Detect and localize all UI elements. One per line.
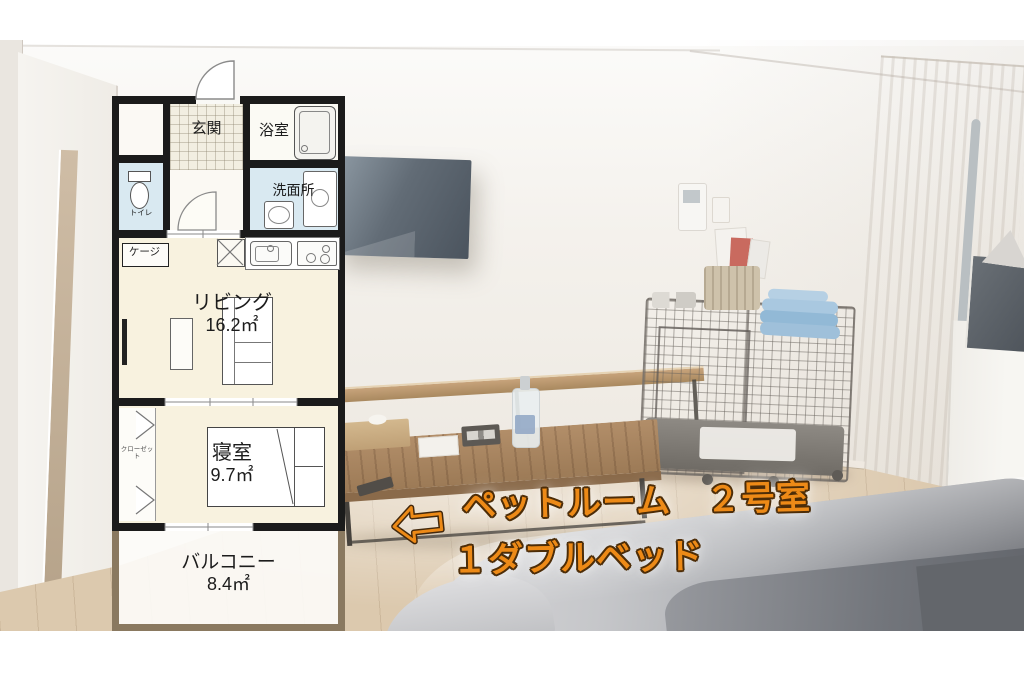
- light-switch: [712, 197, 730, 223]
- plan-area-bedroom: 9.7㎡: [132, 466, 332, 485]
- plan-label-closet: クローゼット: [119, 447, 155, 461]
- bottle-label: [515, 415, 535, 434]
- floorplan-overlay: 玄関 浴室 トイレ 洗面所 ケージ リビング 16.2㎡ 寝室 9.7㎡ クロー…: [112, 95, 345, 632]
- plan-linework-svg: [112, 55, 345, 632]
- left-arrow-icon: [389, 499, 447, 548]
- caption-bed-info: １ダブルベッド: [452, 528, 705, 583]
- plan-label-bathroom: 浴室: [246, 123, 302, 139]
- plan-label-cage: ケージ: [122, 247, 167, 258]
- plan-label-balcony: バルコニー: [119, 553, 338, 573]
- sanitizer-bottle: [512, 388, 540, 448]
- white-box: [418, 435, 459, 458]
- plan-label-entrance: 玄関: [170, 121, 243, 137]
- cage-mat: [699, 427, 796, 462]
- plan-area-living: 16.2㎡: [122, 316, 342, 335]
- plan-label-washroom: 洗面所: [250, 183, 337, 198]
- cage-caster-icon: [832, 470, 843, 481]
- intercom-screen: [683, 190, 700, 203]
- plan-area-balcony: 8.4㎡: [119, 575, 338, 594]
- plan-label-bedroom: 寝室: [132, 443, 332, 464]
- plan-label-toilet: トイレ: [119, 209, 163, 217]
- bottle-pump: [520, 376, 530, 390]
- tray-items: [467, 429, 496, 440]
- table-leg: [344, 502, 352, 546]
- storage-basket: [704, 266, 760, 310]
- plan-label-living: リビング: [122, 293, 342, 314]
- caption-room-title: ペットルーム ２号室: [461, 469, 811, 527]
- intercom-panel: [678, 183, 707, 231]
- tv-reflection: [334, 211, 415, 257]
- accessory-tray: [461, 424, 500, 447]
- room-photo-with-floorplan: 玄関 浴室 トイレ 洗面所 ケージ リビング 16.2㎡ 寝室 9.7㎡ クロー…: [0, 0, 1024, 683]
- wall-tv: [334, 156, 471, 259]
- desk-monitor: [965, 256, 1024, 352]
- small-bottles: [652, 292, 696, 308]
- bottom-letterbox: [0, 631, 1024, 683]
